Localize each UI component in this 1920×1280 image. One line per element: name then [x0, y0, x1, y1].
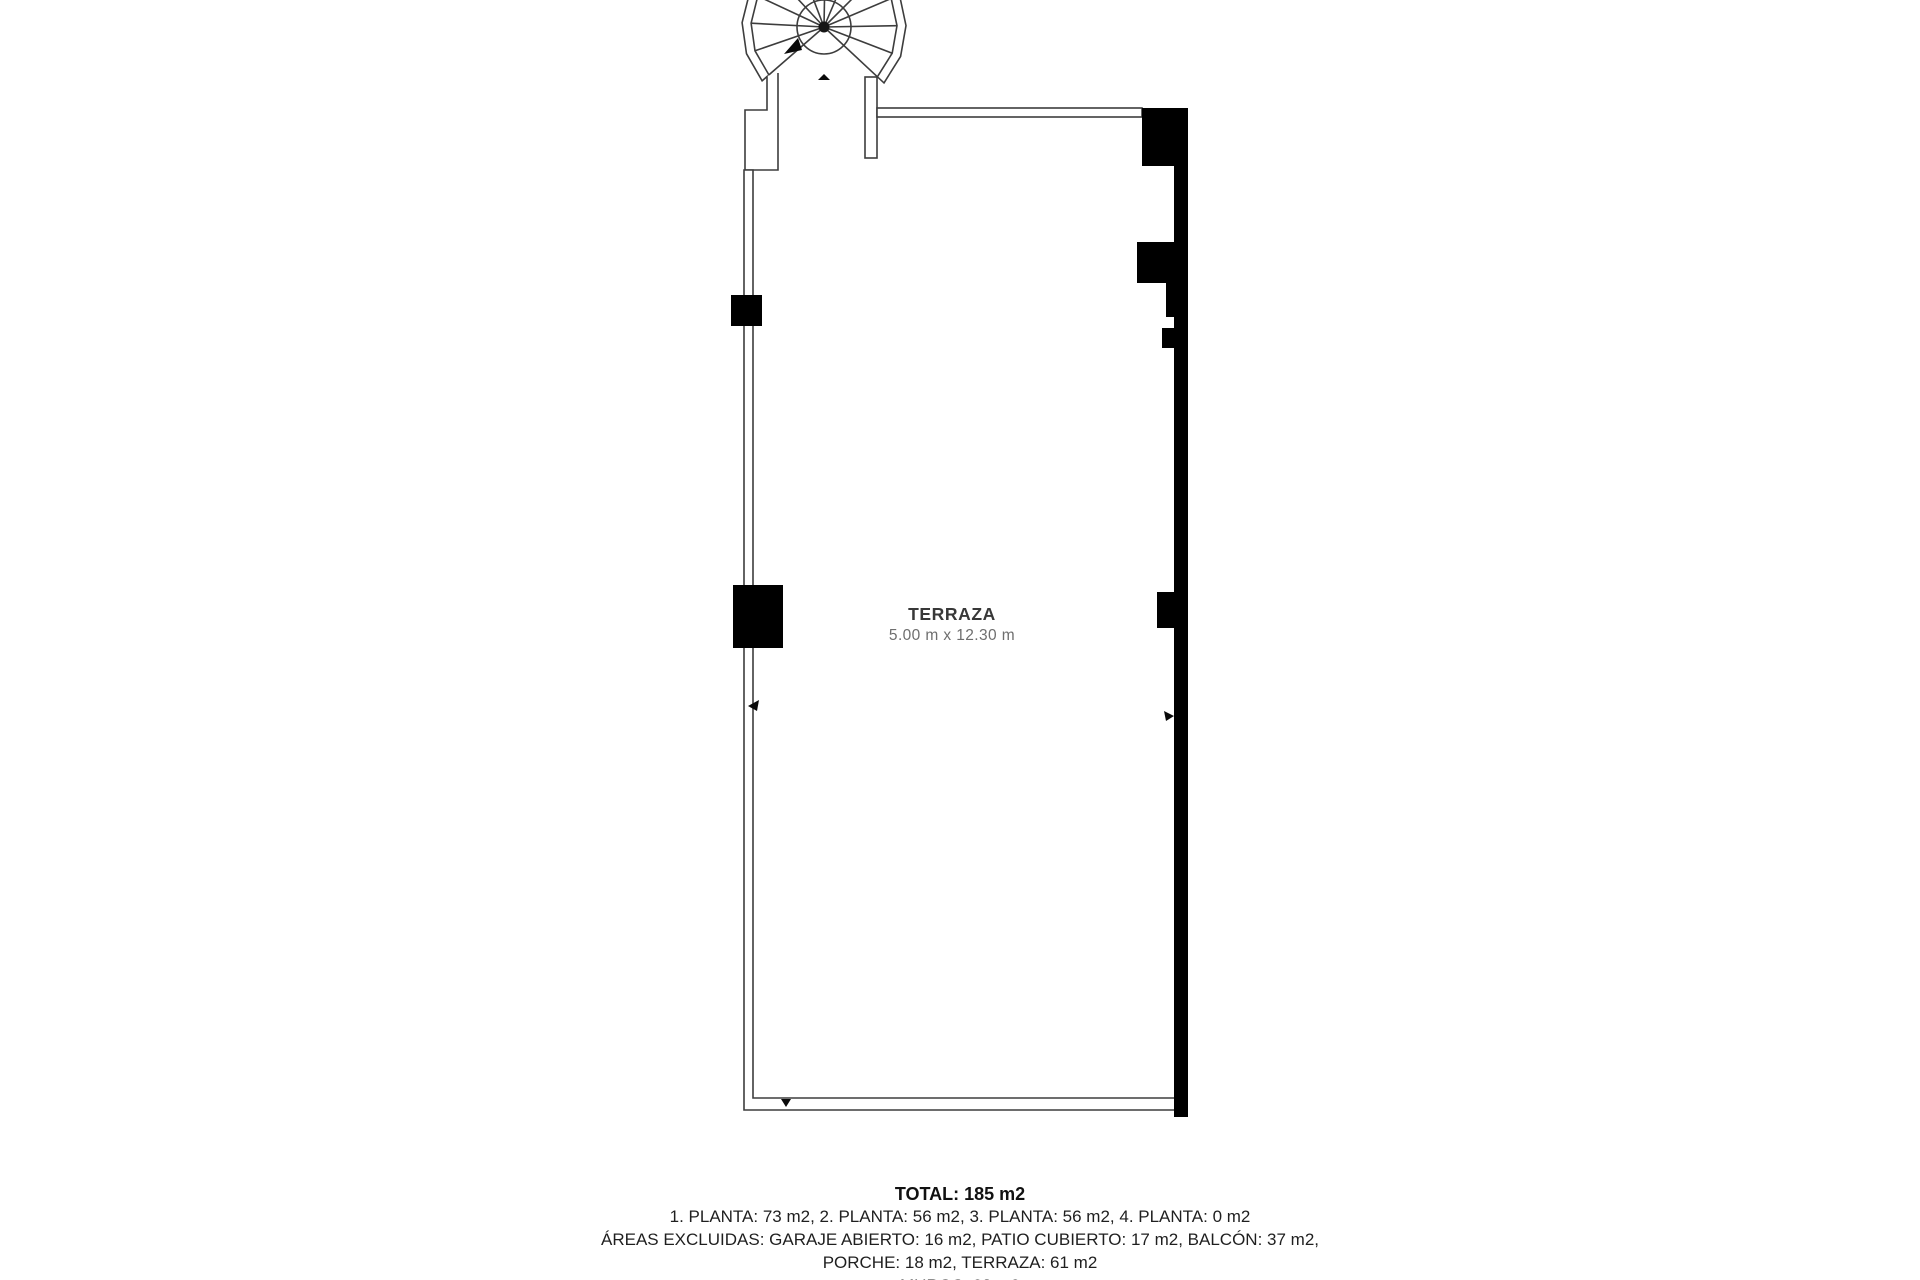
right-wall-notch — [1162, 328, 1174, 348]
right-wall-pier-mid — [1157, 592, 1174, 628]
right-wall-pier-upper — [1137, 242, 1188, 283]
left-wall-piers — [731, 295, 783, 648]
landing-walls — [745, 73, 877, 170]
summary-line-plantas: 1. PLANTA: 73 m2, 2. PLANTA: 56 m2, 3. P… — [0, 1205, 1920, 1228]
floor-plan-page: TERRAZA 5.00 m x 12.30 m TOTAL: 185 m2 1… — [0, 0, 1920, 1280]
left-wall-pier-small — [731, 295, 762, 326]
right-wall — [1137, 108, 1188, 1117]
landing-left-pier — [745, 73, 778, 170]
right-wall-pier-top — [1142, 108, 1188, 166]
left-wall-pier-large — [733, 585, 783, 648]
summary-line-muros: MUROS: 23 m2 — [0, 1274, 1920, 1280]
floor-plan-canvas — [0, 0, 1920, 1280]
staircase-treads — [751, 0, 897, 77]
right-wall-pier-upper-step — [1166, 283, 1188, 317]
arrow-right-icon — [1164, 711, 1174, 721]
area-summary: TOTAL: 185 m2 1. PLANTA: 73 m2, 2. PLANT… — [0, 1183, 1920, 1280]
summary-line-porche-terraza: PORCHE: 18 m2, TERRAZA: 61 m2 — [0, 1251, 1920, 1274]
spiral-staircase — [742, 0, 906, 83]
arrow-up-icon — [818, 74, 830, 80]
opening-arrows — [748, 74, 1174, 1107]
terrace-left-bottom-wall — [744, 170, 1178, 1110]
summary-line-excluded: ÁREAS EXCLUIDAS: GARAJE ABIERTO: 16 m2, … — [0, 1228, 1920, 1251]
landing-right-pier — [865, 77, 877, 158]
terrace-top-wall — [877, 108, 1142, 117]
staircase-newel-post — [819, 22, 830, 33]
summary-total: TOTAL: 185 m2 — [0, 1183, 1920, 1205]
